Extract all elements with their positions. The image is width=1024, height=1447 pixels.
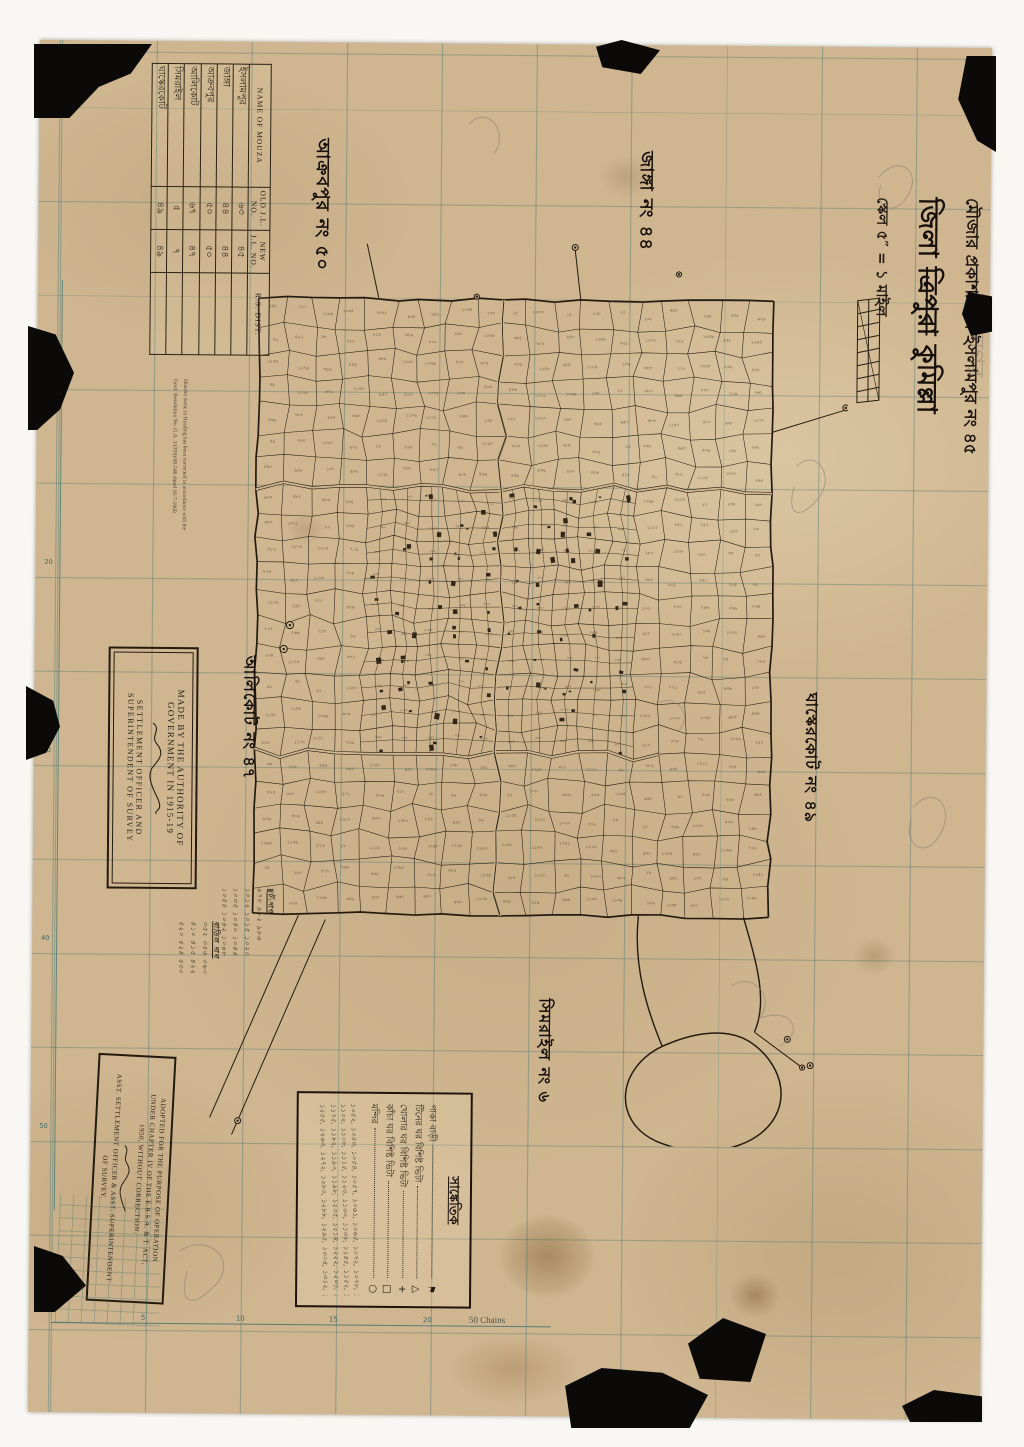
- svg-text:১২৪৪: ১২৪৪: [290, 706, 301, 711]
- table-row: আক্রবপুর ৫০ ৫০: [198, 64, 217, 355]
- rs-dist: [214, 273, 231, 355]
- svg-text:১১২৩: ১১২৩: [697, 475, 708, 480]
- svg-text:৪৪৫: ৪৪৫: [448, 868, 456, 873]
- svg-text:৩২৭: ৩২৭: [455, 734, 461, 738]
- svg-text:১৩৮: ১৩৮: [450, 762, 458, 767]
- svg-text:১৮৩: ১৮৩: [457, 390, 465, 395]
- svg-text:৩৬২: ৩৬২: [404, 521, 410, 525]
- svg-text:৮৯২: ৮৯২: [425, 653, 431, 657]
- svg-text:৪১: ৪১: [295, 679, 301, 684]
- svg-text:৬০৩: ৬০৩: [617, 875, 625, 880]
- legend-label: টিনের ঘর বিশিষ্ট ভিটা: [410, 1104, 424, 1182]
- svg-text:৬১০: ৬১০: [400, 576, 406, 580]
- svg-text:১৮৬: ১৮৬: [622, 361, 630, 366]
- svg-text:৮৫৪: ৮৫৪: [346, 766, 354, 771]
- svg-text:৯৫৫: ৯৫৫: [512, 525, 518, 529]
- svg-text:৯৩৭: ৯৩৭: [405, 767, 413, 772]
- svg-text:১৫৮: ১৫৮: [292, 603, 300, 608]
- svg-text:১৩৭: ১৩৭: [326, 466, 334, 471]
- svg-text:৯২২: ৯২২: [404, 547, 410, 551]
- svg-text:৯৬৭: ৯৬৭: [644, 796, 652, 801]
- svg-text:৭৪১: ৭৪১: [621, 548, 627, 552]
- svg-text:৮১: ৮১: [626, 444, 632, 449]
- svg-text:৪০১: ৪০১: [512, 604, 518, 608]
- neighbor-label-simrail: সিমরাইল নং ৬: [525, 998, 558, 1122]
- svg-text:৫৫: ৫৫: [723, 656, 729, 661]
- svg-text:৭১৩: ৭১৩: [317, 628, 325, 633]
- dotted-leader: [373, 1128, 375, 1278]
- svg-text:২৬৬: ২৬৬: [562, 897, 570, 902]
- svg-text:৭৬৫: ৭৬৫: [398, 603, 404, 607]
- svg-text:১২৬৪: ১২৬৪: [261, 840, 272, 845]
- svg-text:১০৯১: ১০৯১: [562, 606, 570, 610]
- svg-text:৯২৮: ৯২৮: [541, 523, 547, 527]
- svg-text:২৩৪: ২৩৪: [265, 653, 273, 658]
- svg-text:১৩৭: ১৩৭: [694, 876, 702, 881]
- mouza-name: জাঙ্গা: [216, 64, 233, 187]
- svg-text:৯৫৩: ৯৫৩: [728, 714, 736, 719]
- table-row: আলিকোট ৬৭ ৪৭: [182, 64, 201, 355]
- svg-text:১০৯৪: ১০৯৪: [393, 865, 404, 870]
- svg-text:৮৯৭: ৮৯৭: [458, 657, 464, 661]
- svg-text:৪৬: ৪৬: [478, 817, 484, 822]
- neighbor-label-akrabpur: আক্রবপুর নং ৫০: [300, 138, 337, 310]
- svg-text:৭৫৭: ৭৫৭: [700, 522, 708, 527]
- svg-text:৪২৫: ৪২৫: [620, 341, 628, 346]
- svg-text:৪১০: ৪১০: [617, 605, 623, 609]
- svg-text:১১৭৩: ১১৭৩: [288, 659, 299, 664]
- svg-text:১০৬৪: ১০৬৪: [374, 683, 382, 687]
- svg-text:৩৪: ৩৪: [728, 551, 734, 556]
- svg-text:৮৯৭: ৮৯৭: [562, 498, 568, 502]
- svg-text:১২৫১: ১২৫১: [752, 872, 763, 877]
- svg-text:১০৩৭: ১০৩৭: [376, 658, 384, 662]
- svg-text:৫৫২: ৫৫২: [401, 632, 407, 636]
- svg-text:৯৭৪: ৯৭৪: [327, 415, 335, 420]
- svg-text:৮৫৪: ৮৫৪: [289, 901, 297, 906]
- svg-text:৬৫০: ৬৫০: [423, 894, 431, 899]
- scale-bar: [851, 293, 892, 410]
- svg-text:১১৬৫: ১১৬৫: [481, 525, 489, 529]
- legend-item: মন্দির ○: [365, 1104, 381, 1296]
- svg-text:৯২৯: ৯২৯: [375, 627, 381, 631]
- district-prefix: জিলা: [912, 197, 944, 257]
- svg-text:৮৯০: ৮৯০: [726, 797, 734, 802]
- svg-text:১৫৯: ১৫৯: [646, 900, 654, 905]
- svg-text:১০০৩: ১০০৩: [479, 736, 487, 740]
- svg-text:৬০৩: ৬০৩: [563, 792, 571, 797]
- ruler-number: 50: [39, 1122, 47, 1130]
- svg-text:৫৬৮: ৫৬৮: [373, 572, 379, 576]
- svg-text:৯০৪: ৯০৪: [509, 496, 515, 500]
- svg-text:৮৪২: ৮৪২: [588, 821, 596, 826]
- map-sheet: ৪৫৮২১৭১১৯৯১০৬৫১০৪১৯৩৮৯৫১১০৬৫৭৩০১৫১০৮৩১২২…: [28, 40, 992, 1420]
- svg-text:৭৭০: ৭৭০: [562, 524, 568, 528]
- svg-text:৩৯৫: ৩৯৫: [536, 711, 542, 715]
- svg-text:১০৩৮: ১০৩৮: [400, 708, 408, 712]
- svg-text:৬১৪: ৬১৪: [621, 682, 627, 686]
- svg-text:৬৮২: ৬৮২: [485, 578, 491, 582]
- svg-text:৪০৬: ৪০৬: [702, 448, 710, 453]
- svg-text:৪৯৬: ৪৯৬: [429, 683, 435, 687]
- svg-text:৭১০: ৭১০: [506, 685, 512, 689]
- svg-text:৪০৭: ৪০৭: [290, 578, 298, 583]
- svg-text:৮১৫: ৮১৫: [373, 332, 381, 337]
- svg-text:২৮২: ২৮২: [508, 875, 516, 880]
- svg-text:১২০২: ১২০২: [645, 337, 656, 342]
- svg-text:৩০৫: ৩০৫: [503, 899, 511, 904]
- svg-text:৮৮৬: ৮৮৬: [514, 362, 522, 367]
- svg-text:১১০১: ১১০১: [719, 896, 730, 901]
- svg-text:১০১৫: ১০১৫: [726, 630, 737, 635]
- svg-text:১০০৩: ১০০৩: [452, 709, 460, 713]
- svg-text:১২৬৮: ১২৬৮: [316, 895, 327, 900]
- svg-text:৯৩৮: ৯৩৮: [408, 314, 416, 319]
- svg-text:১০০৯: ১০০৯: [730, 736, 741, 741]
- old-jl-no: ৫০: [199, 187, 216, 230]
- svg-text:৪৩১: ৪৩১: [692, 852, 700, 857]
- svg-text:৫০৮: ৫০৮: [372, 895, 380, 900]
- svg-text:৭৩২: ৭৩২: [371, 713, 377, 717]
- svg-text:৫৩৯: ৫৩৯: [479, 792, 487, 797]
- svg-text:৭৫৫: ৭৫৫: [728, 764, 736, 769]
- svg-text:৮৭৫: ৮৭৫: [538, 658, 544, 662]
- svg-text:৫০৫: ৫০৫: [455, 359, 463, 364]
- svg-text:১১৮৬: ১১৮৬: [589, 500, 597, 504]
- svg-text:৫১৩: ৫১৩: [512, 443, 520, 448]
- svg-text:৫৮৩: ৫৮৩: [350, 469, 358, 474]
- svg-text:৪৭০: ৪৭০: [321, 868, 329, 873]
- svg-text:৬৭১: ৬৭১: [325, 389, 333, 394]
- svg-text:৮২৪: ৮২৪: [263, 569, 271, 574]
- svg-text:৭০৯: ৭০৯: [346, 570, 354, 575]
- svg-text:৫৩৬: ৫৩৬: [537, 468, 545, 473]
- svg-text:৪৩৫: ৪৩৫: [371, 871, 379, 876]
- svg-text:৪০৬: ৪০৬: [291, 813, 299, 818]
- svg-text:১০২০: ১০২০: [559, 820, 570, 825]
- mouza-name: ঘাস্কেরকোট: [151, 63, 168, 186]
- triangle-icon: △: [408, 1282, 423, 1296]
- legend-label: মন্দির: [367, 1104, 380, 1124]
- svg-text:৯৪০: ৯৪০: [508, 629, 514, 633]
- svg-text:১৯০: ১৯০: [754, 502, 762, 507]
- svg-text:৭২০: ৭২০: [457, 577, 463, 581]
- svg-text:৭০৩: ৭০৩: [487, 502, 493, 506]
- svg-text:৩৫: ৩৫: [458, 445, 464, 450]
- svg-text:৩৩: ৩৩: [753, 582, 759, 587]
- svg-text:৮১৪: ৮১৪: [264, 626, 272, 631]
- svg-text:৭১৯: ৭১৯: [350, 547, 358, 552]
- svg-text:৮৯৭: ৮৯৭: [430, 467, 438, 472]
- svg-text:১৩০৭: ১৩০৭: [322, 440, 333, 445]
- svg-text:১১১৭: ১১১৭: [429, 498, 437, 502]
- svg-text:৬৪২: ৬৪২: [346, 896, 354, 901]
- svg-text:৮১১: ৮১১: [589, 549, 595, 553]
- svg-text:৪৬৯: ৪৬৯: [671, 824, 679, 829]
- svg-text:১১৭৭: ১১৭৭: [294, 740, 305, 745]
- svg-text:১৮: ১৮: [341, 843, 347, 848]
- new-jl-no: ৪৫: [231, 230, 248, 273]
- svg-text:৪১০: ৪১০: [481, 657, 487, 661]
- svg-text:১১২: ১১২: [677, 366, 685, 371]
- svg-text:১১৯৯: ১১৯৯: [323, 311, 334, 316]
- ruler-number: 15: [329, 1315, 338, 1323]
- svg-text:৭৭৮: ৭৭৮: [458, 679, 464, 683]
- svg-text:২৬১: ২৬১: [754, 390, 762, 395]
- ruler-number: 20: [44, 558, 52, 566]
- square-icon: □: [379, 1282, 394, 1296]
- svg-text:১০০০: ১০০০: [669, 716, 680, 721]
- chains-label: 50 Chains: [469, 1315, 505, 1325]
- svg-text:১৩০৭: ১৩০৭: [339, 817, 350, 822]
- svg-text:৬৯৬: ৬৯৬: [588, 739, 594, 743]
- neighbor-label-alikot: আলিকোট নং ৪৭: [229, 656, 262, 804]
- svg-text:৩২৭: ৩২৭: [404, 683, 410, 687]
- svg-text:১০৬৬: ১০৬৬: [317, 713, 328, 718]
- svg-text:৩২৭: ৩২৭: [642, 631, 650, 636]
- svg-text:১৬৪: ১৬৪: [703, 313, 711, 318]
- svg-text:৭৯: ৭৯: [698, 736, 704, 741]
- svg-text:৩৭৭: ৩৭৭: [347, 339, 355, 344]
- svg-text:১০৮৩: ১০৮৩: [590, 874, 601, 879]
- svg-text:৭৫৭: ৭৫৭: [755, 740, 763, 745]
- svg-text:৬৭২: ৬৭২: [350, 445, 358, 450]
- svg-text:৪৪৫: ৪৪৫: [560, 739, 566, 743]
- svg-text:৩৪৭: ৩৪৭: [508, 763, 516, 768]
- svg-text:৭২৭: ৭২৭: [396, 789, 404, 794]
- svg-text:৪৪৭: ৪৪৭: [690, 903, 698, 908]
- svg-text:১০৫৬: ১০৫৬: [560, 708, 568, 712]
- ruler-number: 40: [41, 934, 49, 942]
- made-by-office: SETTLEMENT OFFICER AND SUPERINTENDENT OF…: [125, 661, 145, 875]
- svg-text:১১৪৮: ১১৪৮: [593, 688, 601, 692]
- svg-text:৩৪৫: ৩৪৫: [535, 736, 541, 740]
- rs-dist: [231, 273, 248, 355]
- svg-text:২৮: ২৮: [642, 824, 648, 829]
- svg-text:১২৩৩: ১২৩৩: [586, 896, 597, 901]
- svg-text:৫৪৬: ৫৪৬: [319, 763, 327, 768]
- old-jl-no: ৫: [167, 186, 184, 229]
- svg-text:১১০৩: ১১০৩: [313, 575, 324, 580]
- new-jl-no: ৪৭: [183, 230, 200, 273]
- svg-text:৫৮১: ৫৮১: [293, 494, 301, 499]
- svg-text:১২১৫: ১২১৫: [369, 845, 380, 850]
- svg-text:৫৬৯: ৫৬৯: [729, 605, 737, 610]
- svg-text:১০২১: ১০২১: [535, 393, 546, 398]
- svg-text:১২৭৬: ১২৭৬: [298, 365, 309, 370]
- plus-icon: +: [394, 1282, 409, 1296]
- svg-text:২৯০: ২৯০: [297, 437, 305, 442]
- svg-text:১১৫৬: ১১৫৬: [287, 839, 298, 844]
- svg-text:৮৭০: ৮৭০: [593, 525, 599, 529]
- rs-dist: [182, 273, 199, 355]
- svg-text:৫৫৮: ৫৫৮: [454, 331, 462, 336]
- legend-item: টিনের ঘর বিশিষ্ট ভিটা △: [408, 1104, 424, 1296]
- district-new-name: কুমিল্লা: [911, 345, 943, 414]
- svg-text:৮২০: ৮২০: [701, 387, 709, 392]
- svg-text:৮৭০: ৮৭০: [458, 630, 464, 634]
- svg-text:৮৫২: ৮৫২: [675, 522, 683, 527]
- district-title: জিলা ত্রিপুরা কুমিল্লা: [901, 197, 949, 532]
- svg-text:১০২৯: ১০২৯: [451, 843, 462, 848]
- svg-text:৫৬৩: ৫৬৩: [459, 413, 467, 418]
- svg-text:৪৪৪: ৪৪৪: [349, 362, 357, 367]
- svg-text:৮১৯: ৮১৯: [507, 714, 513, 718]
- ruler-number: 10: [236, 1315, 245, 1323]
- svg-text:৭৩৬: ৭৩৬: [403, 659, 409, 663]
- svg-text:৯৬৬: ৯৬৬: [374, 550, 380, 554]
- svg-text:১২২০: ১২২০: [535, 415, 546, 420]
- svg-text:১১০৮: ১১০৮: [426, 577, 434, 581]
- svg-text:১০৩৬: ১০৩৬: [425, 361, 436, 366]
- svg-text:৪৩০: ৪৩০: [454, 900, 462, 905]
- svg-text:১২৫৩: ১২৫৩: [346, 685, 357, 690]
- svg-text:১১৪৭: ১১৪৭: [531, 845, 542, 850]
- svg-text:১৫৭: ১৫৭: [294, 870, 302, 875]
- svg-text:৪০৩: ৪০৩: [483, 602, 489, 606]
- svg-text:৪৬৩: ৪৬৩: [594, 421, 602, 426]
- svg-text:১১২০: ১১২০: [534, 817, 545, 822]
- svg-text:১১০৯: ১১০৯: [406, 413, 417, 418]
- svg-text:১০৩৫: ১০৩৫: [484, 333, 495, 338]
- table-row: ঘাস্কেরকোট ৪৯ ৪৯: [150, 63, 169, 354]
- svg-text:৫৯৭: ৫৯৭: [565, 580, 571, 584]
- svg-text:৬২৮: ৬২৮: [725, 420, 733, 425]
- svg-text:৫৭৬: ৫৭৬: [376, 793, 384, 798]
- neighbor-label-ghaskerkot: ঘাস্কেরকোট নং ৪৯: [789, 692, 825, 870]
- svg-text:২৮৭: ২৮৭: [645, 550, 653, 555]
- svg-text:১০৪২: ১০৪২: [592, 605, 600, 609]
- legend-label: পাকা বাড়ী: [425, 1104, 438, 1141]
- svg-text:৭৬২: ৭৬২: [430, 549, 436, 553]
- svg-text:১০৬১: ১০৬১: [453, 553, 461, 557]
- svg-text:৫৯: ৫৯: [618, 767, 624, 772]
- svg-text:৪২: ৪২: [350, 633, 356, 638]
- svg-text:১১৫১: ১১৫১: [313, 735, 324, 740]
- mouza-name: আলিকোট: [184, 64, 201, 187]
- svg-text:৪১: ৪১: [273, 337, 279, 342]
- svg-text:৯৪০: ৯৪০: [567, 334, 575, 339]
- svg-text:১২৩৮: ১২৩৮: [673, 549, 684, 554]
- dotted-leader: [431, 1145, 433, 1278]
- scanned-map-page: ৪৫৮২১৭১১৯৯১০৬৫১০৪১৯৩৮৯৫১১০৬৫৭৩০১৫১০৮৩১২২…: [0, 0, 1024, 1447]
- svg-text:১১২৫: ১১২৫: [587, 364, 598, 369]
- svg-text:৮৪৮: ৮৪৮: [425, 816, 433, 821]
- svg-text:৯৩০: ৯৩০: [264, 519, 272, 524]
- svg-text:১০৬৫: ১০৬৫: [462, 307, 473, 312]
- svg-text:৮৪৫: ৮৪৫: [615, 658, 621, 662]
- svg-text:৬১: ৬১: [564, 872, 570, 877]
- svg-text:১৪: ১৪: [375, 443, 381, 448]
- svg-text:১২৬৪: ১২৬৪: [595, 336, 606, 341]
- svg-text:১২৫৮: ১২৫৮: [316, 789, 327, 794]
- svg-text:৮২০: ৮২০: [508, 416, 516, 421]
- old-jl-no: ৬৩: [232, 187, 249, 230]
- svg-text:৪৯৭: ৪৯৭: [670, 308, 678, 313]
- svg-text:২৬২: ২৬২: [751, 445, 759, 450]
- svg-text:১০৪৯: ১০৪৯: [703, 334, 714, 339]
- svg-text:৬৬: ৬৬: [267, 761, 273, 766]
- svg-text:২১: ২১: [617, 388, 623, 393]
- svg-text:১৩৫: ১৩৫: [703, 628, 711, 633]
- svg-text:২০৫: ২০৫: [729, 582, 737, 587]
- svg-text:২৭০: ২৭০: [314, 598, 322, 603]
- svg-text:১২৭৭: ১২৭৭: [753, 418, 764, 423]
- svg-text:১১৯০: ১১৯০: [746, 895, 757, 900]
- svg-text:১১৫৫: ১১৫৫: [506, 813, 517, 818]
- svg-text:৮৪৫: ৮৪৫: [537, 630, 543, 634]
- svg-text:১১৩৫: ১১৩৫: [480, 873, 491, 878]
- svg-text:১১৫৭: ১১৫৭: [429, 526, 437, 530]
- svg-text:১২২৪: ১২২৪: [674, 497, 685, 502]
- svg-text:৯৫১: ৯৫১: [431, 311, 439, 316]
- svg-text:১৫: ১৫: [513, 310, 519, 315]
- svg-text:১০৭৫: ১০৭৫: [428, 390, 439, 395]
- svg-text:৩৩০: ৩৩০: [591, 713, 597, 717]
- svg-text:৫৬৬: ৫৬৬: [479, 471, 487, 476]
- svg-text:৯০: ৯০: [677, 794, 683, 799]
- svg-text:৯৪৪: ৯৪৪: [565, 684, 571, 688]
- svg-text:৫৪৫: ৫৪৫: [752, 367, 760, 372]
- svg-text:৯৮৫: ৯৮৫: [616, 636, 622, 640]
- svg-text:৫০৬: ৫০৬: [484, 384, 492, 389]
- svg-text:৫৬০: ৫৬০: [264, 464, 272, 469]
- svg-text:৯০৮: ৯০৮: [458, 472, 466, 477]
- legend-label: খোলার ঘর বিশিষ্ট ভিটা: [395, 1104, 409, 1187]
- svg-text:৪৯: ৪৯: [269, 382, 275, 387]
- svg-text:৪৬৭: ৪৬৭: [757, 634, 765, 639]
- svg-text:১১৬৫: ১১৬৫: [615, 791, 626, 796]
- svg-text:১৫৩: ১৫৩: [729, 529, 737, 534]
- svg-text:৮২৭: ৮২৭: [407, 495, 413, 499]
- svg-text:১০০৯: ১০০৯: [371, 602, 379, 606]
- svg-text:৫৮৩: ৫৮৩: [322, 497, 330, 502]
- svg-text:৯৯৪: ৯৯৪: [752, 711, 760, 716]
- svg-text:১০২৫: ১০২৫: [317, 546, 328, 551]
- svg-text:৭৮৩: ৭৮৩: [294, 412, 302, 417]
- neighbor-label-jangya: জাঙ্গা নং ৪৪: [624, 151, 661, 279]
- svg-text:৮৭১: ৮৭১: [669, 685, 677, 690]
- svg-text:১০৭৪: ১০৭৪: [291, 544, 302, 549]
- rs-dist: [166, 272, 183, 354]
- svg-text:৪৯৩: ৪৯৩: [677, 446, 685, 451]
- svg-text:৩১৩: ৩১৩: [267, 547, 275, 552]
- svg-text:১২৫৪: ১২৫৪: [267, 359, 278, 364]
- svg-text:১৩৮: ১৩৮: [484, 418, 492, 423]
- svg-text:৯২২: ৯২২: [514, 548, 520, 552]
- svg-text:১১২৩: ১১২৩: [620, 500, 628, 504]
- svg-text:৫৮৩: ৫৮৩: [563, 549, 569, 553]
- svg-text:৬৫০: ৬৫০: [621, 419, 629, 424]
- svg-text:১৭৩: ১৭৩: [642, 606, 650, 611]
- svg-text:৭০১: ৭০১: [644, 684, 652, 689]
- svg-text:১১৩৩: ১১৩৩: [353, 386, 364, 391]
- svg-text:৮৬৫: ৮৬৫: [752, 604, 760, 609]
- svg-text:১০৬৫: ১০৬৫: [343, 308, 354, 313]
- svg-text:১১৪২: ১১৪২: [539, 366, 550, 371]
- svg-text:৫৭৮: ৫৭৮: [537, 606, 543, 610]
- svg-text:১৯৮: ১৯৮: [749, 826, 757, 831]
- svg-text:৯২৫: ৯২৫: [261, 740, 269, 745]
- svg-text:৯৬৭: ৯৬৭: [619, 576, 625, 580]
- svg-text:১২৬৮: ১২৬৮: [427, 843, 438, 848]
- svg-text:৯৫২: ৯৫২: [669, 876, 677, 881]
- svg-text:১১০৬: ১১০৬: [611, 898, 622, 903]
- svg-text:১১২৪: ১১২৪: [661, 851, 672, 856]
- svg-text:২২৭: ২২৭: [642, 742, 650, 747]
- dotted-leader: [416, 1186, 418, 1278]
- svg-text:১২১১: ১২১১: [697, 761, 708, 766]
